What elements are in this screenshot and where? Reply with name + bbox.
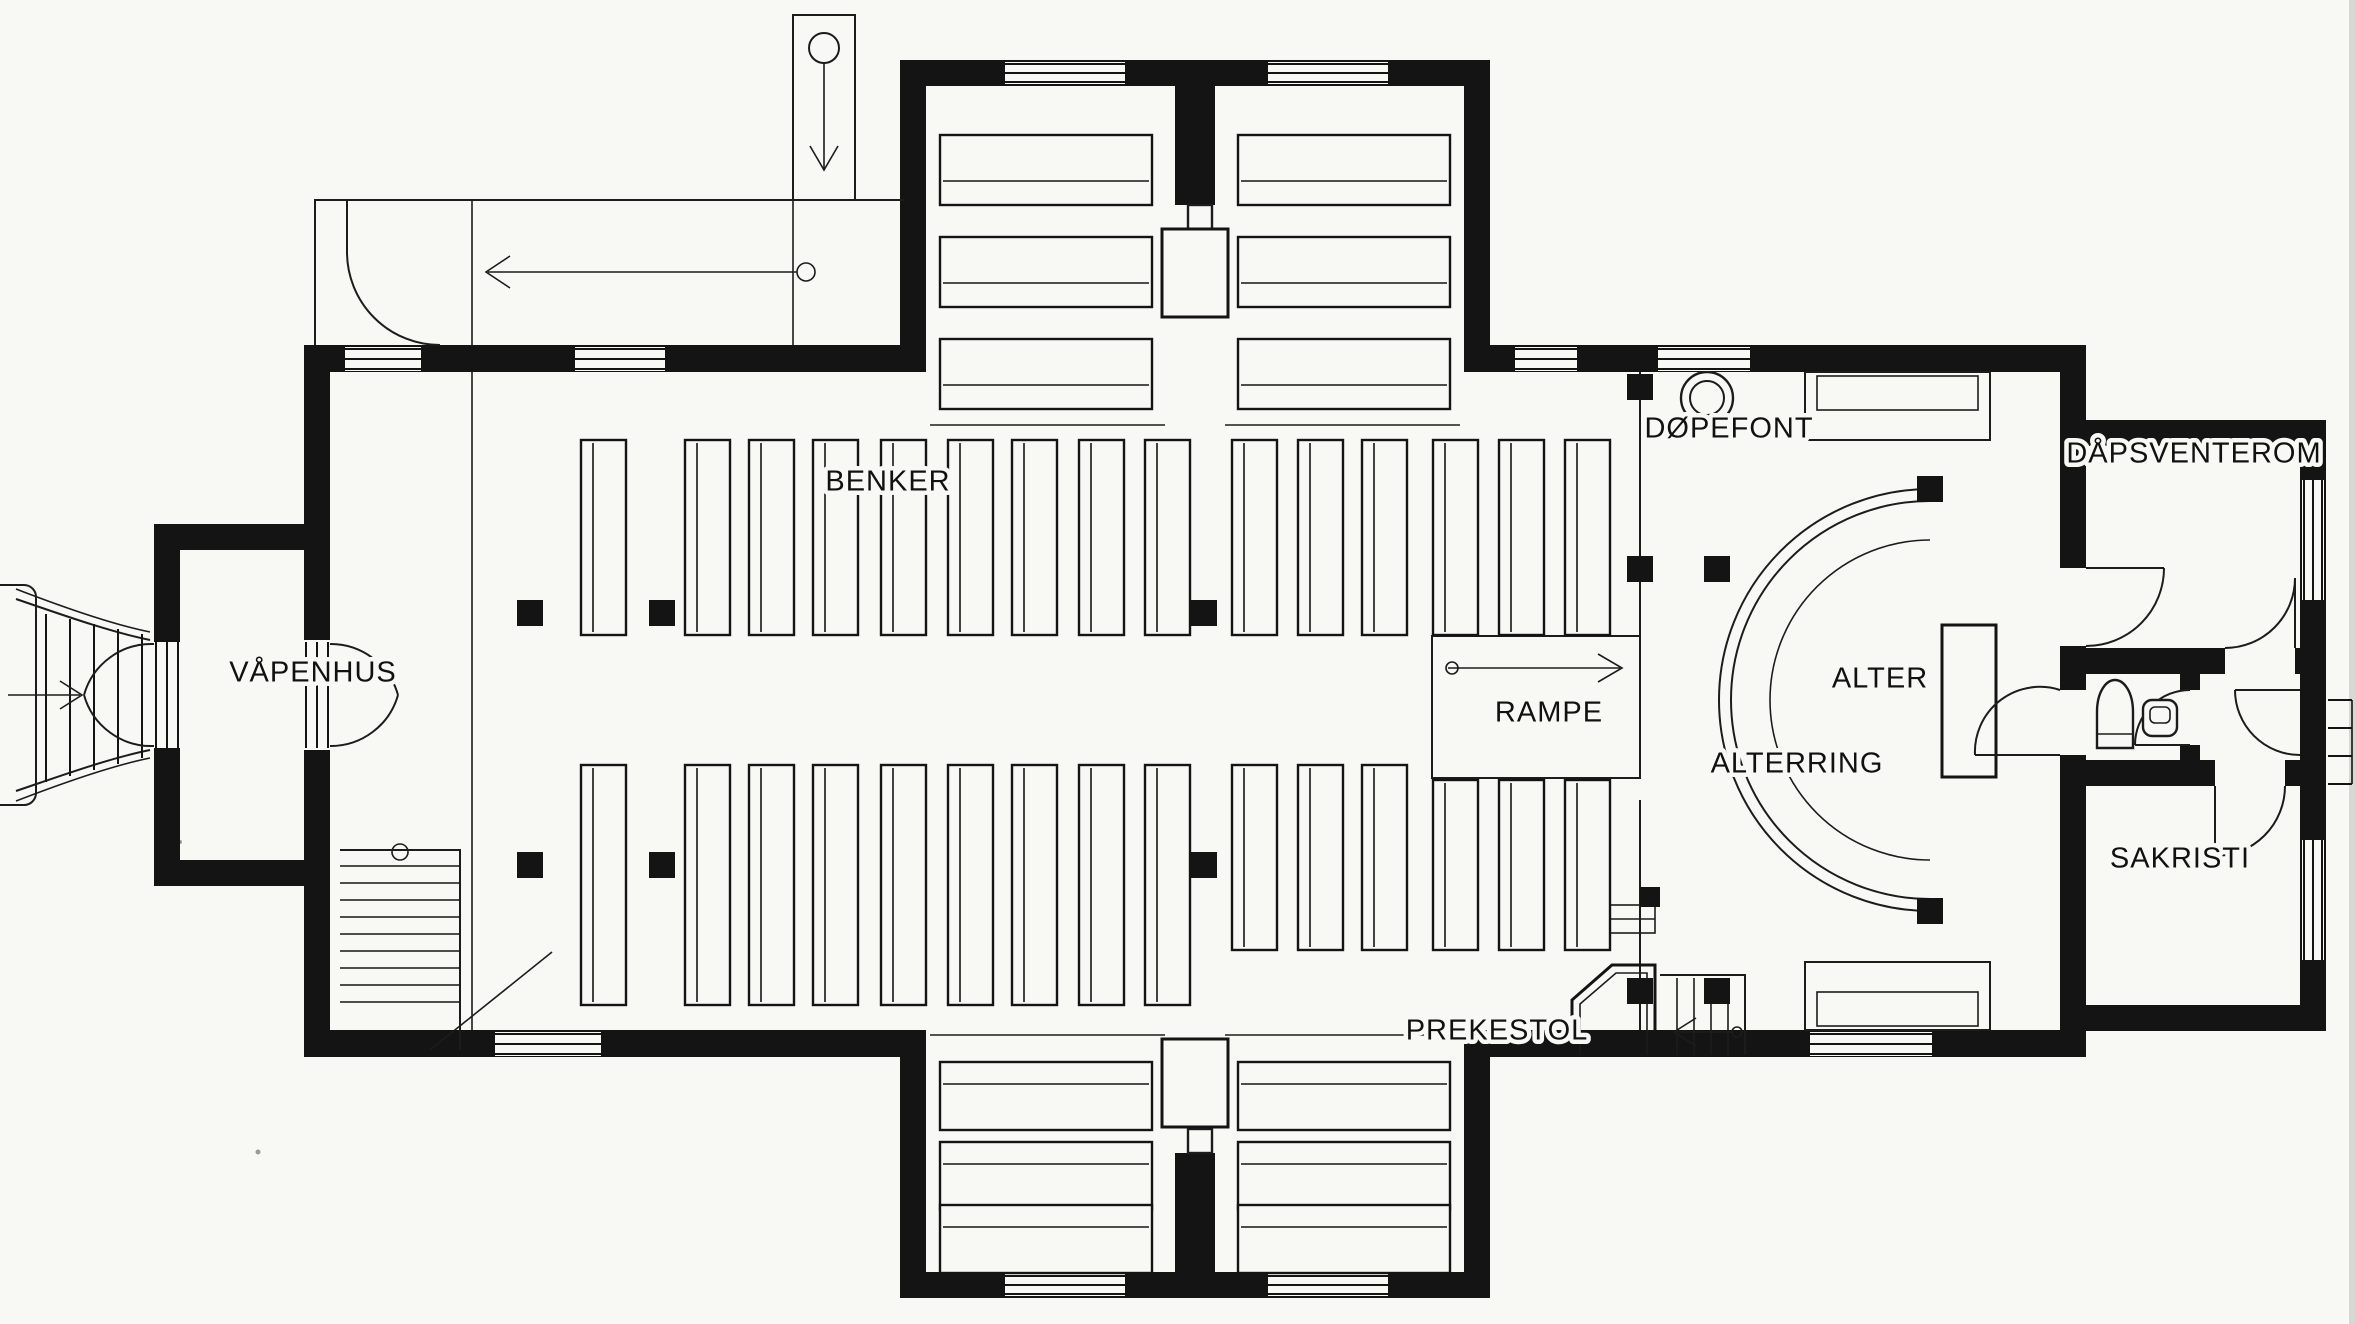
stair-down-arrow (810, 63, 838, 170)
pillar (517, 600, 543, 626)
pillar (1191, 852, 1217, 878)
pew (1232, 765, 1277, 950)
dapsventerom-west-door (2086, 568, 2164, 646)
dapsventerom-south-door (2225, 578, 2295, 648)
transept-pews (940, 135, 1450, 1273)
label-rampe: RAMPE (1495, 697, 1603, 729)
scan-edge (2349, 0, 2355, 1324)
pew (948, 765, 993, 1005)
pew (685, 765, 730, 1005)
pillar (1175, 1153, 1215, 1298)
transept-pew (940, 1205, 1152, 1273)
chancel-hall-door (1975, 687, 2060, 755)
east-exterior-door (2235, 690, 2300, 755)
pew (1145, 440, 1190, 635)
transept-pew (1238, 135, 1450, 205)
label-alter: ALTER (1832, 663, 1928, 695)
gallery-direction-arrow (486, 256, 815, 288)
transept-pew (940, 135, 1152, 205)
pew (1012, 440, 1057, 635)
pew (1079, 440, 1124, 635)
transept-pew (1238, 237, 1450, 307)
transept-pew (1238, 1205, 1450, 1273)
west-entry (0, 585, 154, 805)
transept-pew (1238, 339, 1450, 409)
entry-steps (46, 614, 142, 782)
transept-pew (1238, 1142, 1450, 1210)
sink (2143, 700, 2177, 736)
pillar (1704, 978, 1730, 1004)
pew (1499, 780, 1544, 950)
pew (749, 765, 794, 1005)
gallery-door-swing (347, 252, 440, 345)
pillar (649, 852, 675, 878)
pew (581, 440, 626, 635)
pew (1565, 440, 1610, 635)
altar-rail (1719, 489, 1930, 911)
chancel-bench-south (1805, 962, 1990, 1030)
nave-pews-upper (581, 440, 1610, 635)
toilet (2097, 680, 2133, 748)
pew (1433, 780, 1478, 950)
pillar (1175, 60, 1215, 205)
chancel-bench-north (1805, 372, 1990, 440)
pew (1565, 780, 1610, 950)
pew (685, 440, 730, 635)
nave-lines (472, 372, 1660, 1035)
label-vapenhus: VÅPENHUS (229, 656, 397, 689)
pillar (1917, 476, 1943, 502)
stair-start-marker (809, 33, 839, 63)
pillar (1704, 556, 1730, 582)
nave-pews-lower (581, 765, 1610, 1005)
pew (749, 440, 794, 635)
south-transept-stove (1162, 1039, 1228, 1298)
sw-stair-treads (340, 866, 460, 1002)
transept-pew (940, 237, 1152, 307)
label-sakristi: SAKRISTI (2110, 843, 2250, 875)
wc-fixtures (2097, 680, 2177, 748)
pew (1362, 440, 1407, 635)
pew (1012, 765, 1057, 1005)
transept-pew (940, 1142, 1152, 1210)
pillar (1191, 600, 1217, 626)
floor-plan-page: VÅPENHUS BENKER DØPEFONT DÅPSVENTEROM AL… (0, 0, 2355, 1324)
pew (813, 765, 858, 1005)
pillar (1627, 556, 1653, 582)
pew (881, 765, 926, 1005)
stove (1162, 1039, 1228, 1127)
pew (1362, 765, 1407, 950)
gallery-corridor (315, 15, 905, 345)
label-benker: BENKER (825, 466, 950, 498)
pew (1079, 765, 1124, 1005)
transept-pew (940, 339, 1152, 409)
pew (1232, 440, 1277, 635)
stove (1162, 229, 1228, 317)
pew (1433, 440, 1478, 635)
pew (1145, 765, 1190, 1005)
pillar (1627, 374, 1653, 400)
east-exterior-steps (2328, 700, 2352, 784)
pew (1298, 440, 1343, 635)
north-transept-stove (1162, 60, 1228, 317)
label-alterring: ALTERRING (1711, 748, 1884, 780)
side-step-post (1640, 887, 1660, 907)
pillar (1917, 898, 1943, 924)
pillar (517, 852, 543, 878)
pew (581, 765, 626, 1005)
pillar (649, 600, 675, 626)
scan-speck (256, 1150, 261, 1155)
pew (1499, 440, 1544, 635)
label-dopefont: DØPEFONT (1644, 413, 1813, 445)
church-floor-plan-drawing: VÅPENHUS BENKER DØPEFONT DÅPSVENTEROM AL… (0, 0, 2355, 1324)
transept-pew (940, 1062, 1152, 1130)
pew (1298, 765, 1343, 950)
transept-pew (1238, 1062, 1450, 1130)
pillar (1627, 978, 1653, 1004)
label-dapsventerom: DÅPSVENTEROM (2066, 437, 2321, 470)
pew (948, 440, 993, 635)
label-prekestol: PREKESTOL (1406, 1015, 1589, 1047)
